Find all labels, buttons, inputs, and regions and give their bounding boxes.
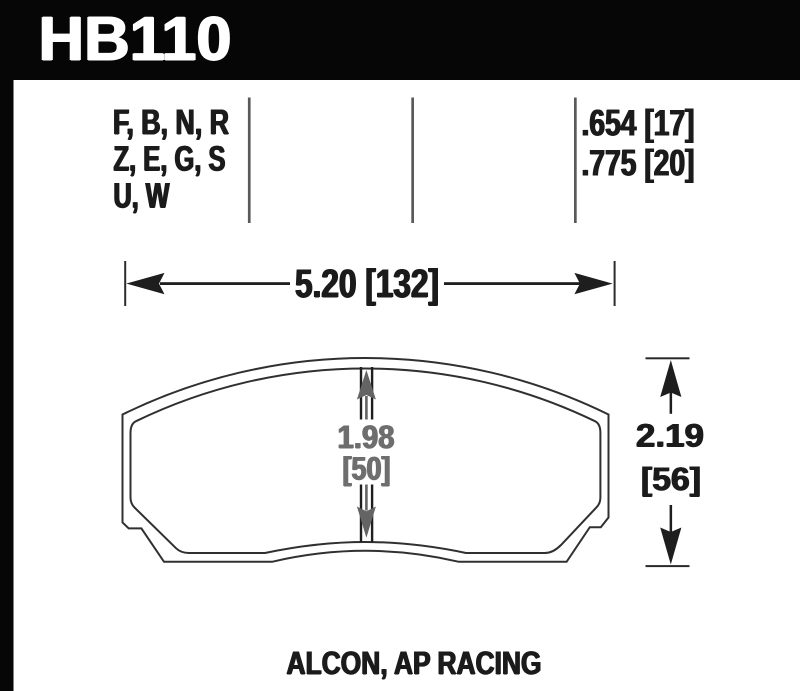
svg-text:ALCON, AP RACING: ALCON, AP RACING (287, 645, 542, 681)
svg-text:HB110: HB110 (39, 4, 232, 73)
svg-text:5.20 [132]: 5.20 [132] (295, 263, 439, 307)
svg-text:2.19: 2.19 (636, 418, 704, 454)
svg-text:.654 [17]: .654 [17] (582, 103, 695, 144)
svg-text:[50]: [50] (343, 451, 391, 487)
svg-text:Z, E, G, S: Z, E, G, S (114, 140, 226, 179)
svg-text:U, W: U, W (114, 177, 170, 216)
svg-text:F, B, N, R: F, B, N, R (113, 103, 229, 142)
svg-text:[56]: [56] (641, 461, 701, 497)
svg-text:.775 [20]: .775 [20] (582, 143, 695, 184)
